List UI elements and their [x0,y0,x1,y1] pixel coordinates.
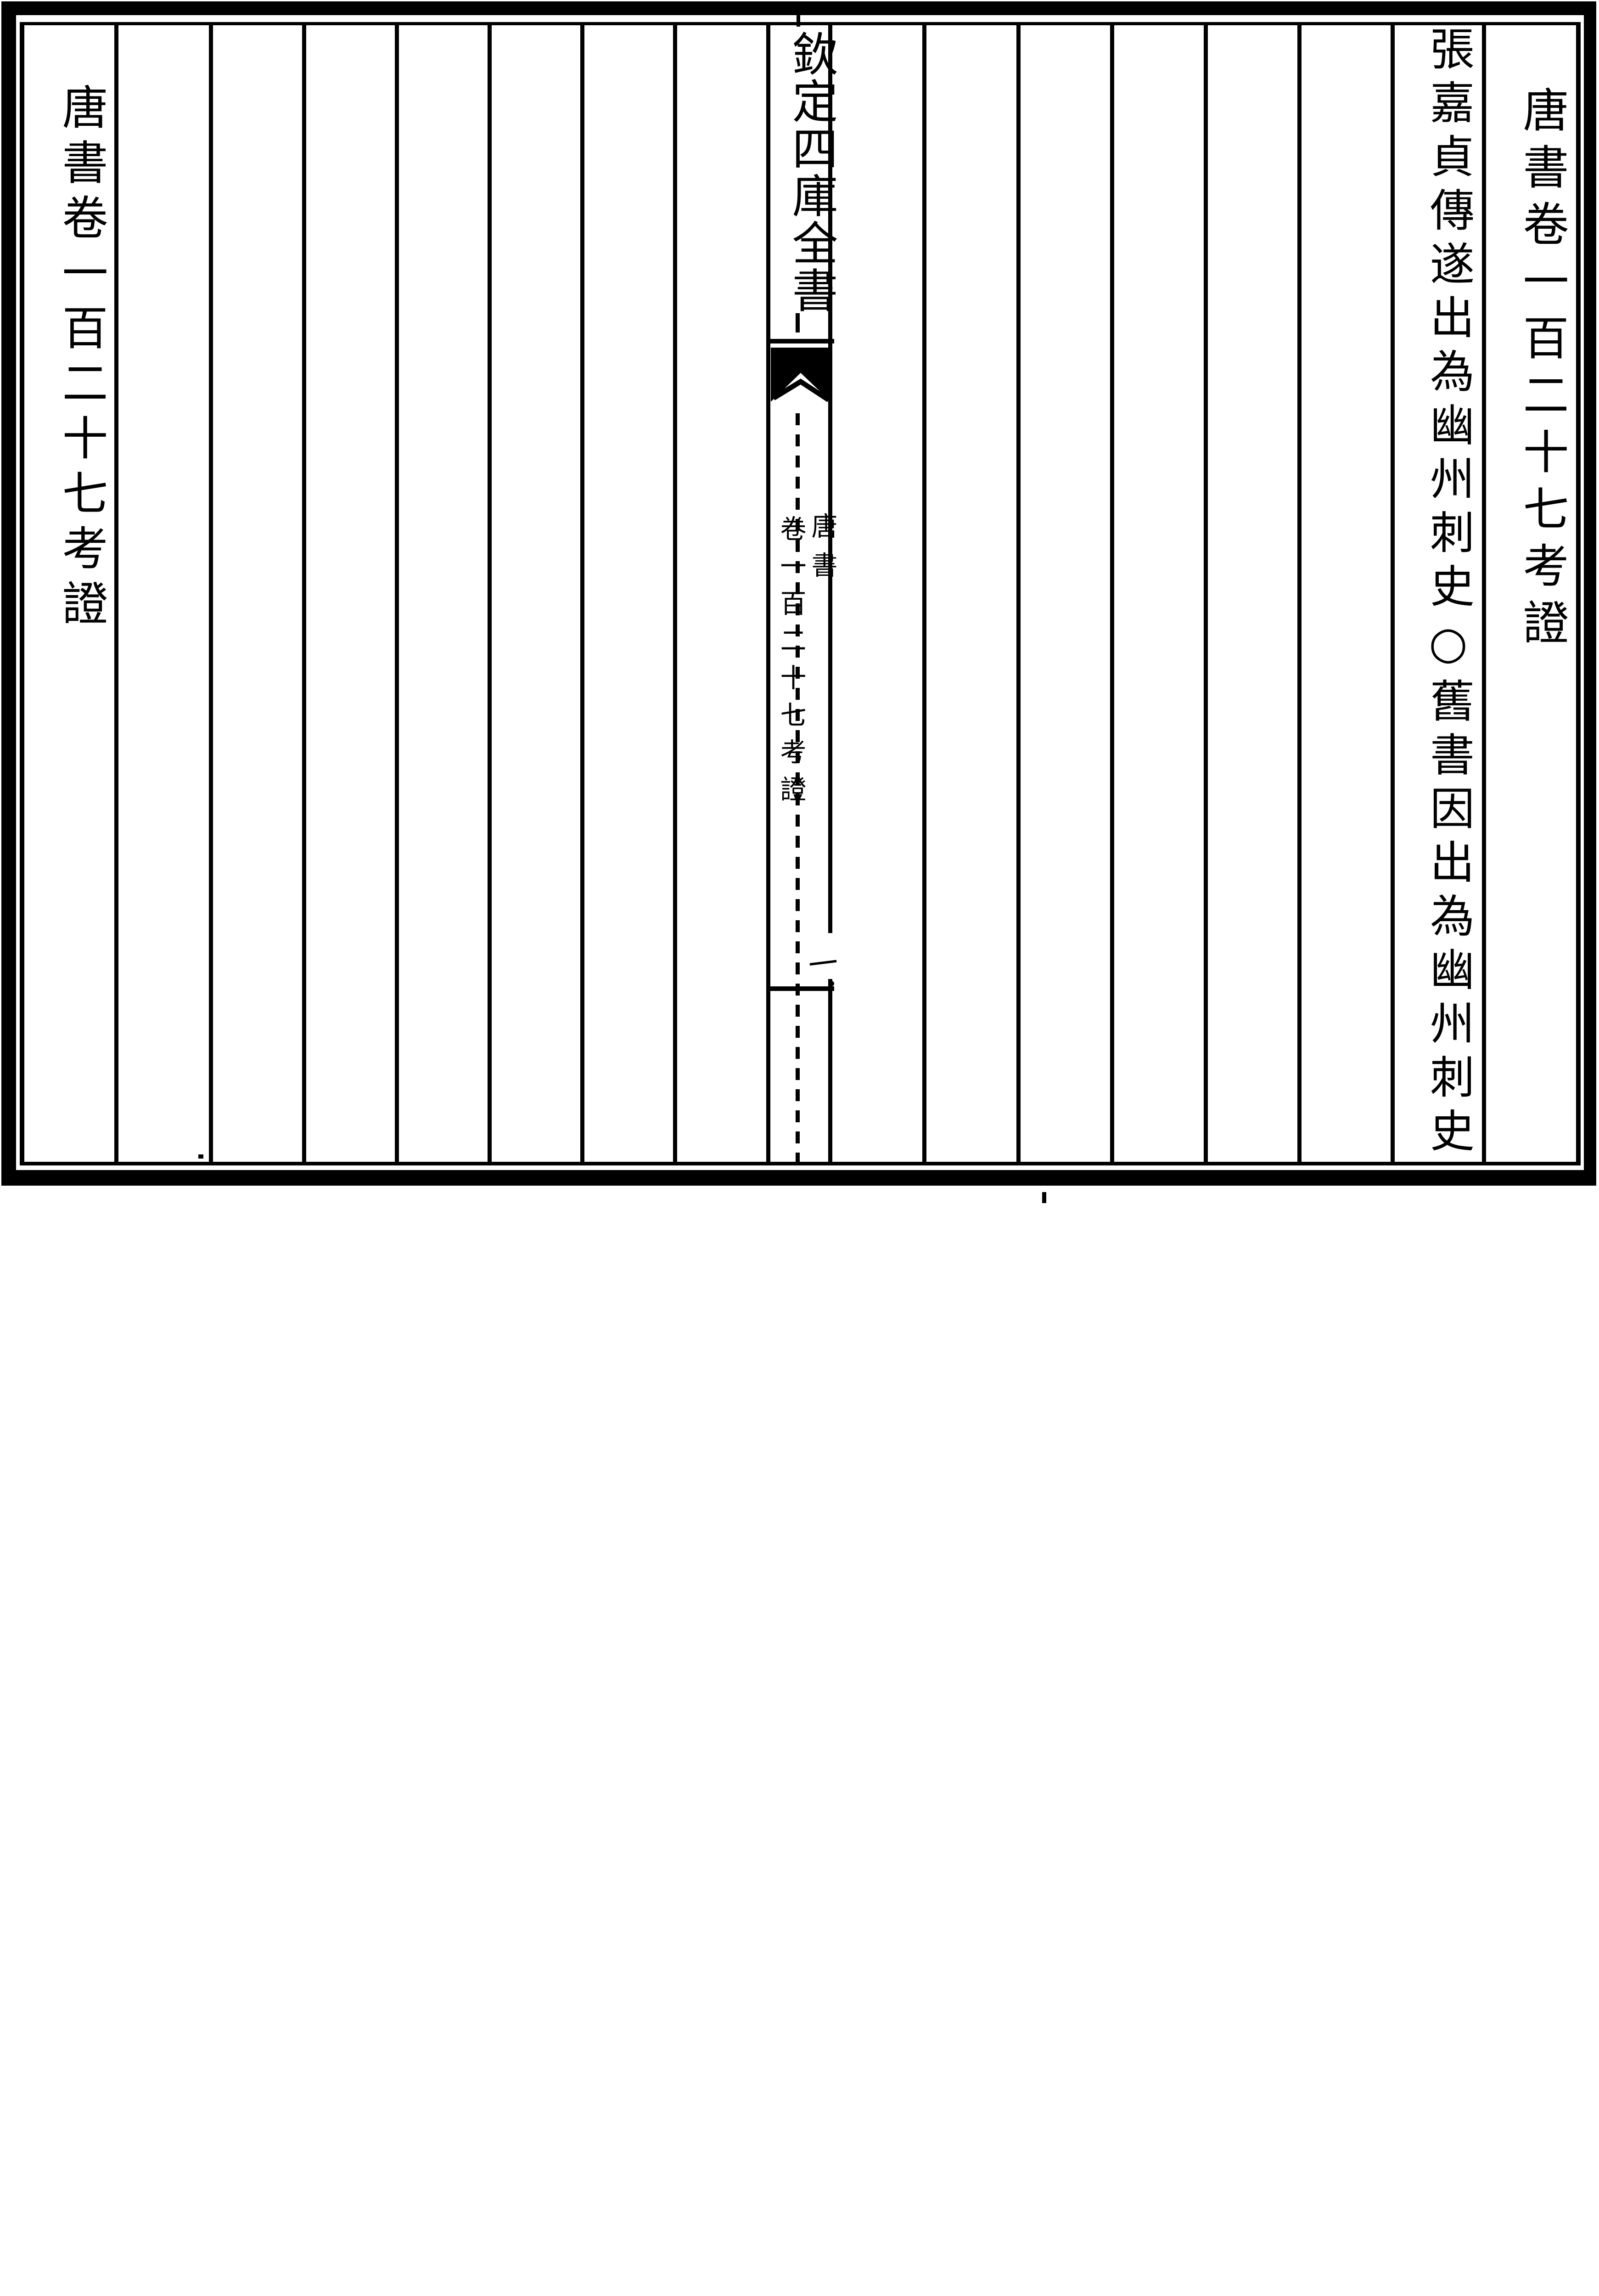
column-divider [1204,25,1208,1162]
fold-mark-top [797,14,800,27]
column-divider [1110,25,1114,1162]
column-divider [1482,25,1486,1162]
column-divider [1391,25,1395,1162]
ink-speck [829,981,834,986]
ink-speck [198,1154,203,1159]
spine-bottom-rule [767,986,834,991]
column-divider [395,25,399,1162]
spine-left-divider [766,25,770,1162]
column-divider [302,25,306,1162]
column-divider [1016,25,1021,1162]
right-page-body-text: 張嘉貞傳遂出為幽州刺史○舊書因出為幽州刺史 [1416,26,1481,1161]
spine-series-title: 欽定四庫全書 [778,30,844,314]
column-divider [580,25,584,1162]
column-divider [673,25,677,1162]
column-divider [114,25,118,1162]
ink-speck [1042,1192,1046,1203]
spine-top-rule [767,339,834,343]
column-divider [209,25,213,1162]
column-divider [922,25,926,1162]
left-page-chapter-title: 唐書卷一百二十七考證 [48,84,114,635]
fish-tail-mark-icon [771,348,831,430]
column-divider [488,25,492,1162]
spine-leaf-number: 一 [797,946,843,981]
right-page-chapter-title: 唐書卷一百二十七考證 [1509,86,1575,656]
spine-section-title: 卷一百二十七考證 [772,515,810,813]
column-divider [1297,25,1302,1162]
fold-line-dash [796,313,800,332]
